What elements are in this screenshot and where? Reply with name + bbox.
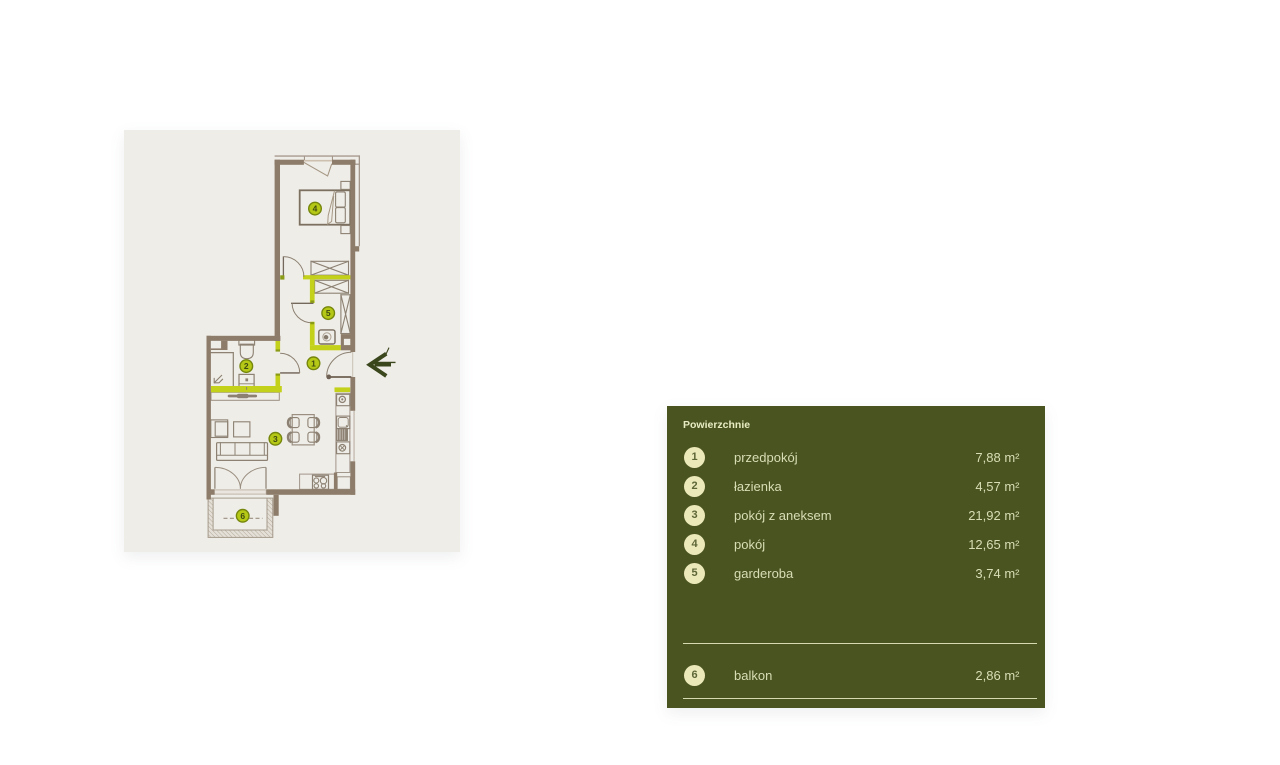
svg-text:6: 6: [240, 511, 245, 521]
svg-text:2: 2: [244, 361, 249, 371]
svg-text:4: 4: [313, 204, 318, 214]
svg-text:5: 5: [326, 308, 331, 318]
svg-text:3: 3: [273, 434, 278, 444]
svg-text:1: 1: [311, 358, 316, 368]
